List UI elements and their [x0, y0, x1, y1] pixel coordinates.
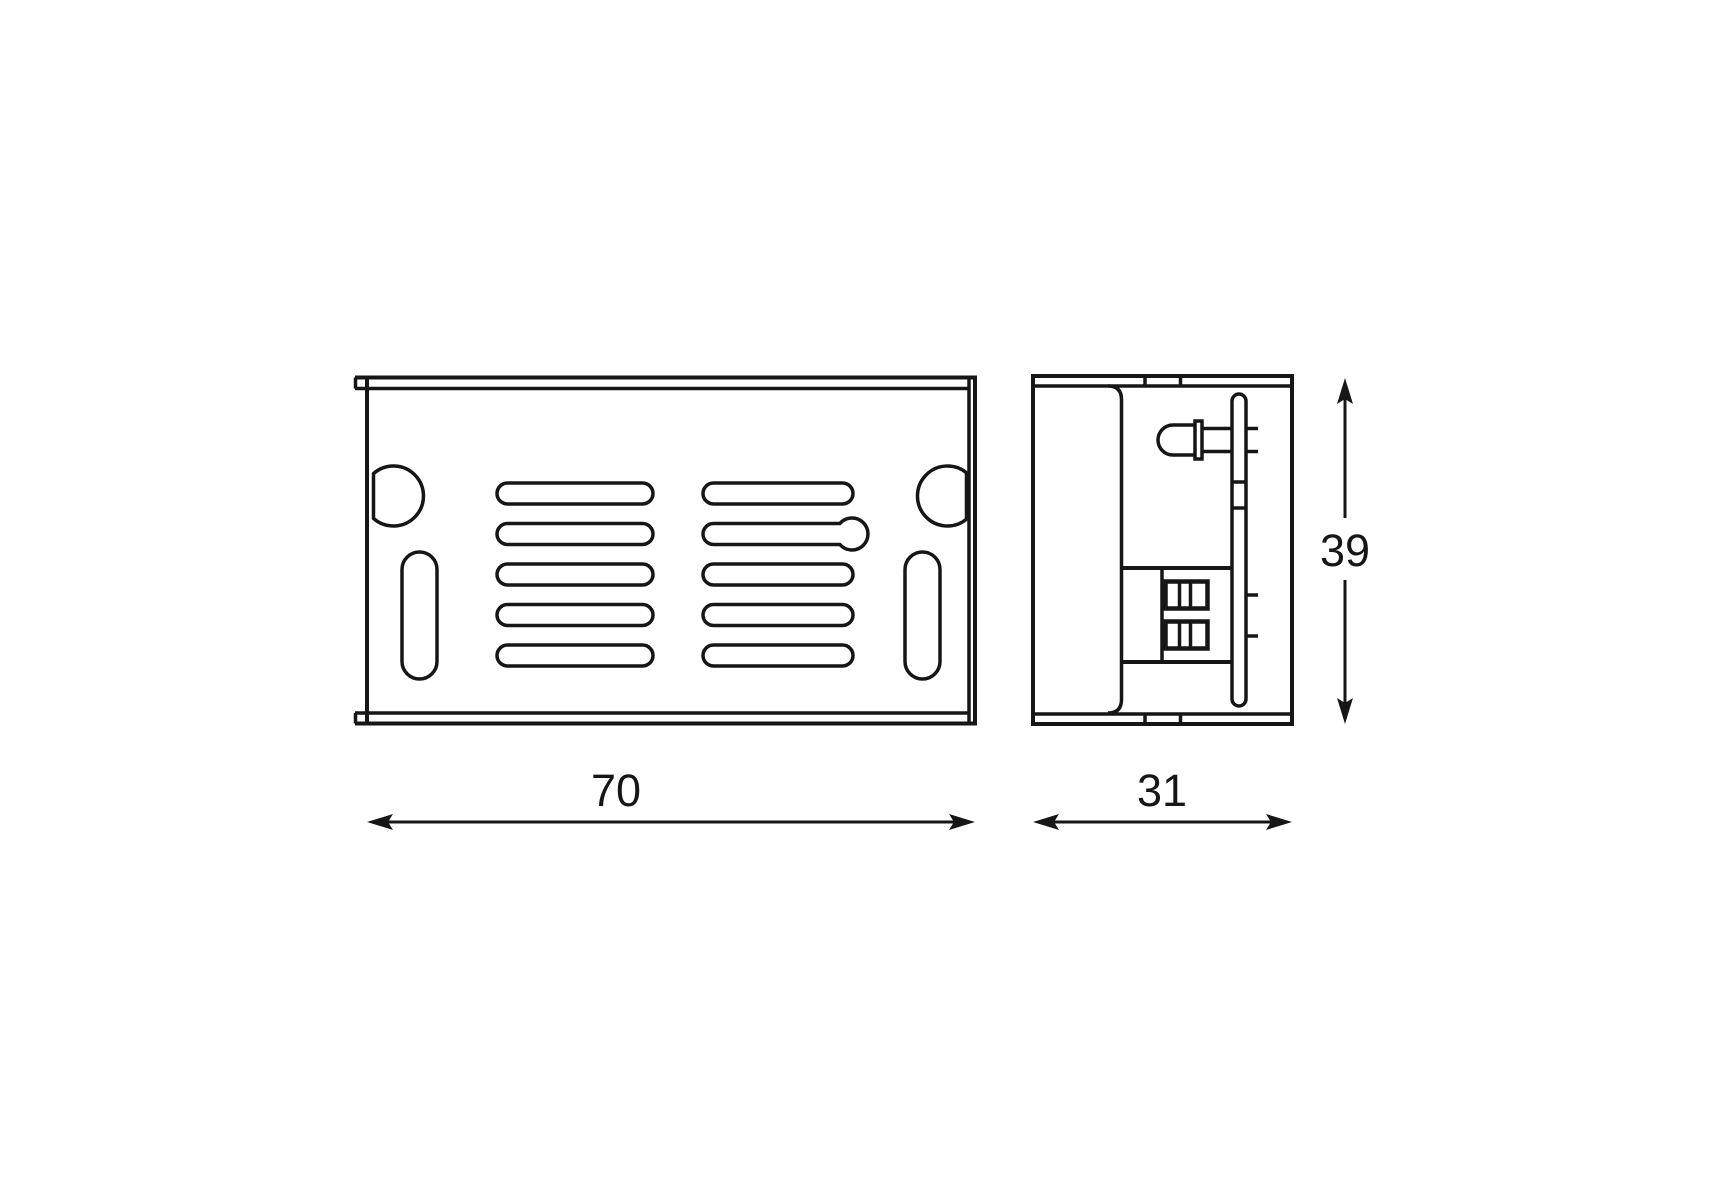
dimension-width-label: 70 [591, 765, 641, 816]
vent-slot [497, 524, 653, 545]
dimension-depth-label: 31 [1137, 765, 1187, 816]
terminal-port-frame [1166, 622, 1208, 649]
top-view-outline [367, 378, 975, 724]
led-flange [1195, 421, 1202, 459]
dimension-height: 39 [1320, 378, 1370, 724]
keyhole-slot [703, 518, 868, 550]
vent-slot [497, 483, 653, 504]
dimension-width: 70 [367, 765, 975, 830]
vent-slots-left-column [497, 483, 653, 666]
vent-slots-right-column [703, 483, 868, 666]
mounting-hole-left [374, 466, 424, 526]
dimension-height-label: 39 [1320, 525, 1370, 576]
side-slot-left [402, 552, 437, 679]
vent-slot [703, 564, 853, 585]
top-view [355, 378, 975, 724]
terminal-screw-port [1166, 582, 1208, 609]
side-slot-right [905, 552, 940, 679]
vent-slot [703, 605, 853, 626]
vent-slot [497, 645, 653, 666]
terminal-port-frame [1166, 582, 1208, 609]
led [1158, 421, 1258, 459]
terminal-screw-port [1166, 622, 1208, 649]
vent-slot [703, 645, 853, 666]
side-view [1033, 376, 1292, 724]
led-dome [1158, 425, 1195, 455]
technical-drawing: 70 31 39 [0, 0, 1715, 1200]
chassis-fold-line [1108, 386, 1122, 713]
vent-slot [497, 564, 653, 585]
mounting-hole-right [917, 466, 966, 526]
terminal-block [1122, 568, 1259, 662]
vent-slot [703, 483, 853, 504]
dimension-depth: 31 [1033, 765, 1292, 830]
pcb [1232, 394, 1246, 706]
vent-slot [497, 605, 653, 626]
